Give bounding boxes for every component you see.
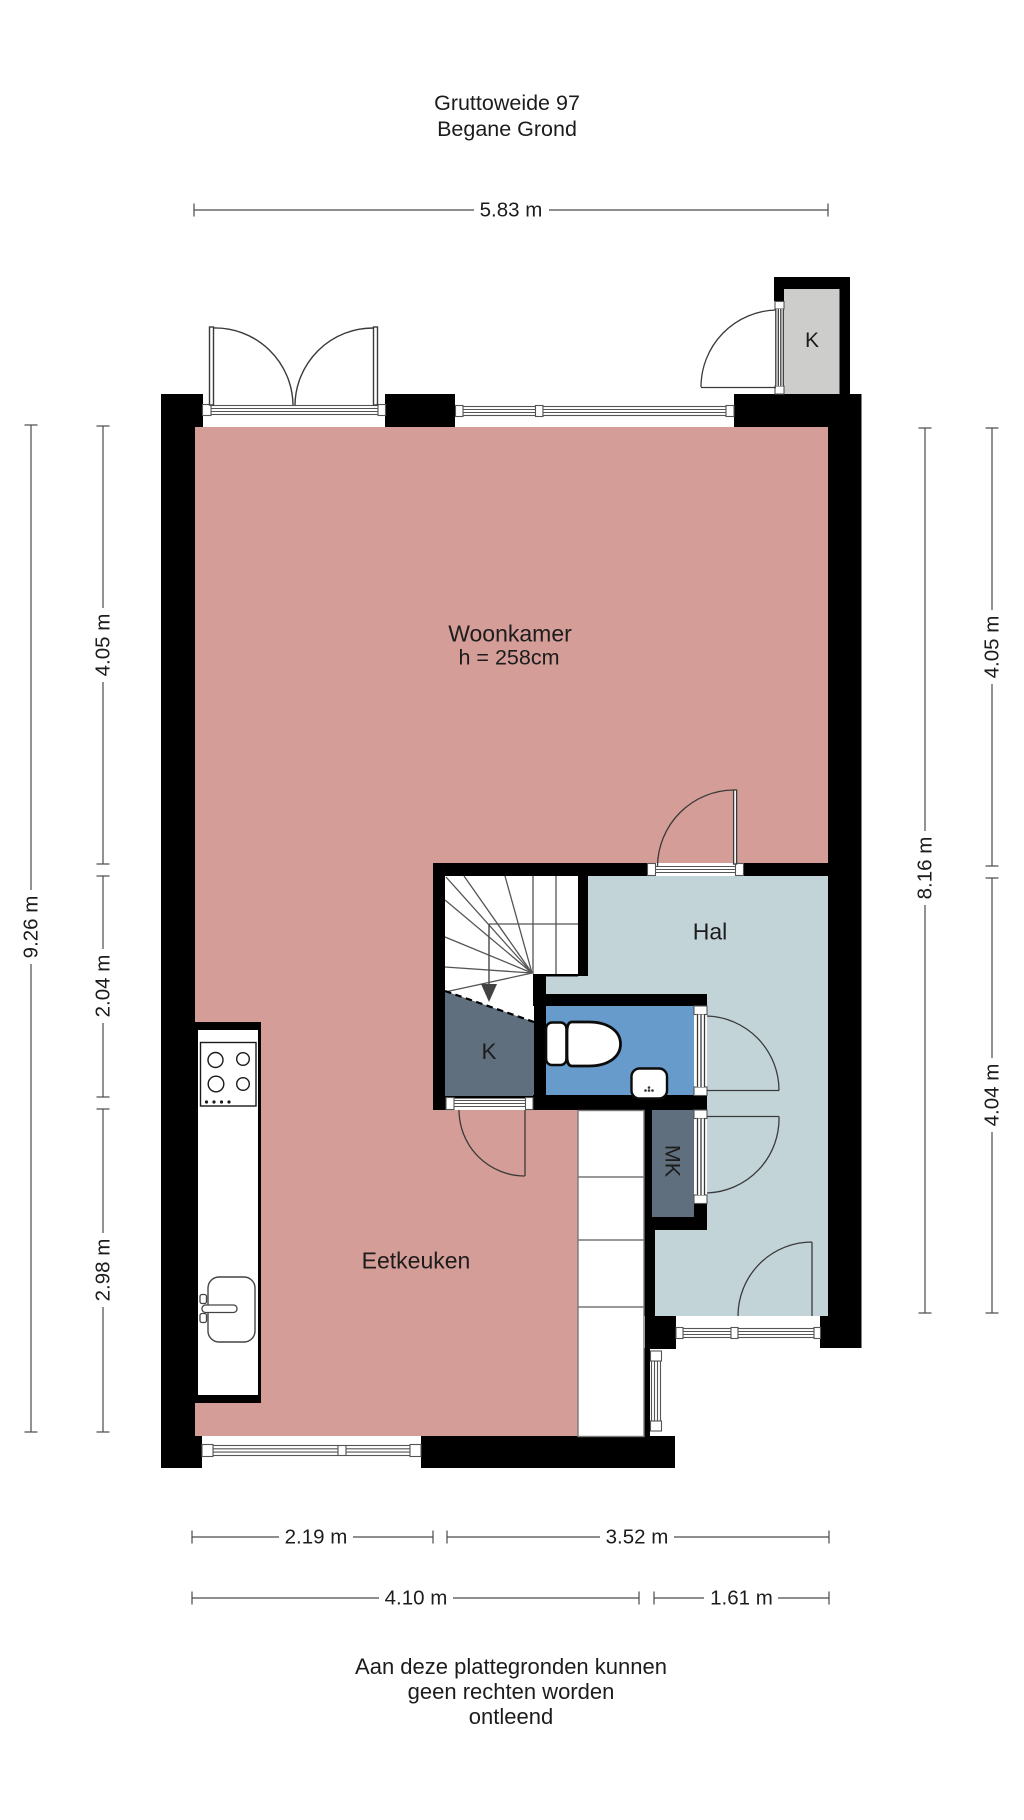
svg-text:Woonkamer: Woonkamer: [448, 621, 572, 647]
svg-text:Aan deze plattegronden kunnen: Aan deze plattegronden kunnen: [355, 1654, 667, 1679]
svg-text:Begane Grond: Begane Grond: [437, 117, 577, 141]
svg-text:2.19 m: 2.19 m: [285, 1526, 348, 1549]
svg-text:3.52 m: 3.52 m: [606, 1526, 669, 1549]
svg-text:MK: MK: [661, 1145, 685, 1178]
svg-text:K: K: [805, 329, 819, 352]
svg-text:1.61 m: 1.61 m: [710, 1587, 773, 1610]
svg-text:Hal: Hal: [693, 919, 728, 945]
svg-text:8.16 m: 8.16 m: [914, 837, 937, 900]
svg-text:Eetkeuken: Eetkeuken: [362, 1248, 471, 1274]
svg-text:geen rechten worden: geen rechten worden: [408, 1679, 615, 1704]
svg-text:4.04 m: 4.04 m: [981, 1064, 1004, 1127]
svg-text:h = 258cm: h = 258cm: [459, 646, 560, 670]
svg-text:4.05 m: 4.05 m: [92, 614, 115, 677]
svg-text:K: K: [481, 1039, 496, 1064]
svg-text:9.26 m: 9.26 m: [20, 896, 43, 959]
svg-text:2.98 m: 2.98 m: [92, 1239, 115, 1302]
svg-text:4.05 m: 4.05 m: [981, 616, 1004, 679]
svg-text:2.04 m: 2.04 m: [92, 955, 115, 1018]
svg-text:ontleend: ontleend: [469, 1704, 553, 1729]
svg-text:4.10 m: 4.10 m: [385, 1587, 448, 1610]
svg-text:5.83 m: 5.83 m: [480, 199, 543, 222]
svg-text:Gruttoweide 97: Gruttoweide 97: [434, 91, 580, 115]
